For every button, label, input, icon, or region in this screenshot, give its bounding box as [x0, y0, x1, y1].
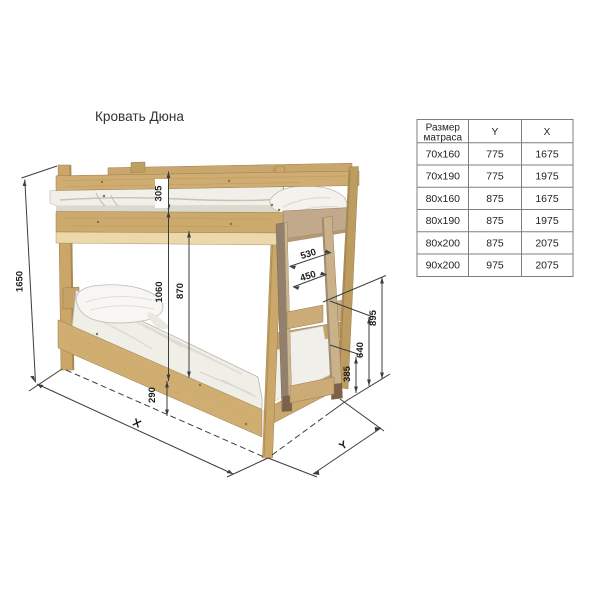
svg-text:70х160: 70х160	[426, 149, 461, 161]
svg-text:975: 975	[486, 260, 504, 272]
svg-text:X: X	[544, 127, 551, 138]
svg-text:875: 875	[486, 238, 504, 250]
svg-text:870: 870	[175, 283, 186, 299]
svg-text:1060: 1060	[154, 281, 165, 302]
svg-text:70х190: 70х190	[426, 171, 461, 183]
svg-text:875: 875	[486, 215, 504, 227]
svg-text:1975: 1975	[535, 215, 559, 227]
svg-text:775: 775	[486, 149, 504, 161]
svg-text:Кровать Дюна: Кровать Дюна	[95, 109, 184, 124]
svg-text:895: 895	[368, 309, 379, 326]
svg-text:1675: 1675	[535, 193, 559, 205]
svg-text:1675: 1675	[535, 149, 559, 161]
svg-text:775: 775	[486, 171, 504, 183]
svg-text:1975: 1975	[535, 171, 559, 183]
svg-text:290: 290	[147, 387, 158, 403]
svg-text:80х200: 80х200	[426, 238, 461, 250]
svg-text:2075: 2075	[535, 238, 559, 250]
svg-text:1650: 1650	[15, 271, 26, 292]
svg-text:640: 640	[355, 342, 366, 358]
svg-text:2075: 2075	[535, 260, 559, 272]
svg-text:матраса: матраса	[424, 133, 463, 144]
svg-text:80х190: 80х190	[426, 215, 461, 227]
svg-text:Y: Y	[492, 127, 499, 138]
svg-text:875: 875	[486, 193, 504, 205]
svg-text:385: 385	[342, 365, 353, 382]
svg-text:90х200: 90х200	[426, 260, 461, 272]
svg-text:80х160: 80х160	[426, 193, 461, 205]
svg-text:305: 305	[154, 185, 165, 202]
